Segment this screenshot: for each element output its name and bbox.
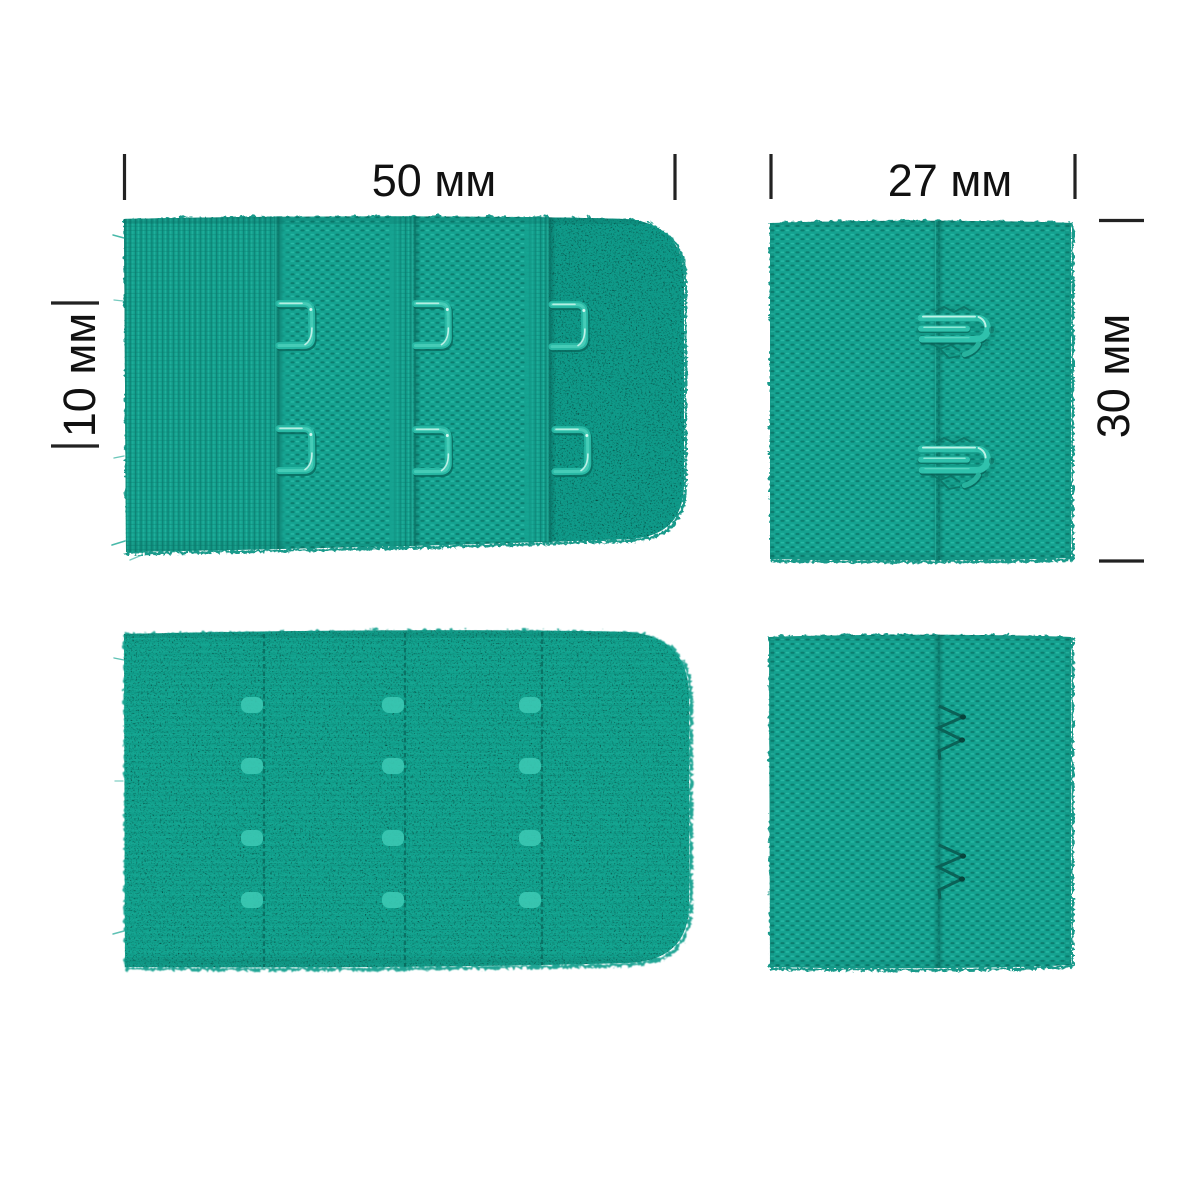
- svg-text:30 мм: 30 мм: [1088, 314, 1139, 438]
- svg-text:10 мм: 10 мм: [54, 313, 105, 437]
- svg-text:27 мм: 27 мм: [888, 155, 1012, 206]
- svg-text:50 мм: 50 мм: [372, 155, 496, 206]
